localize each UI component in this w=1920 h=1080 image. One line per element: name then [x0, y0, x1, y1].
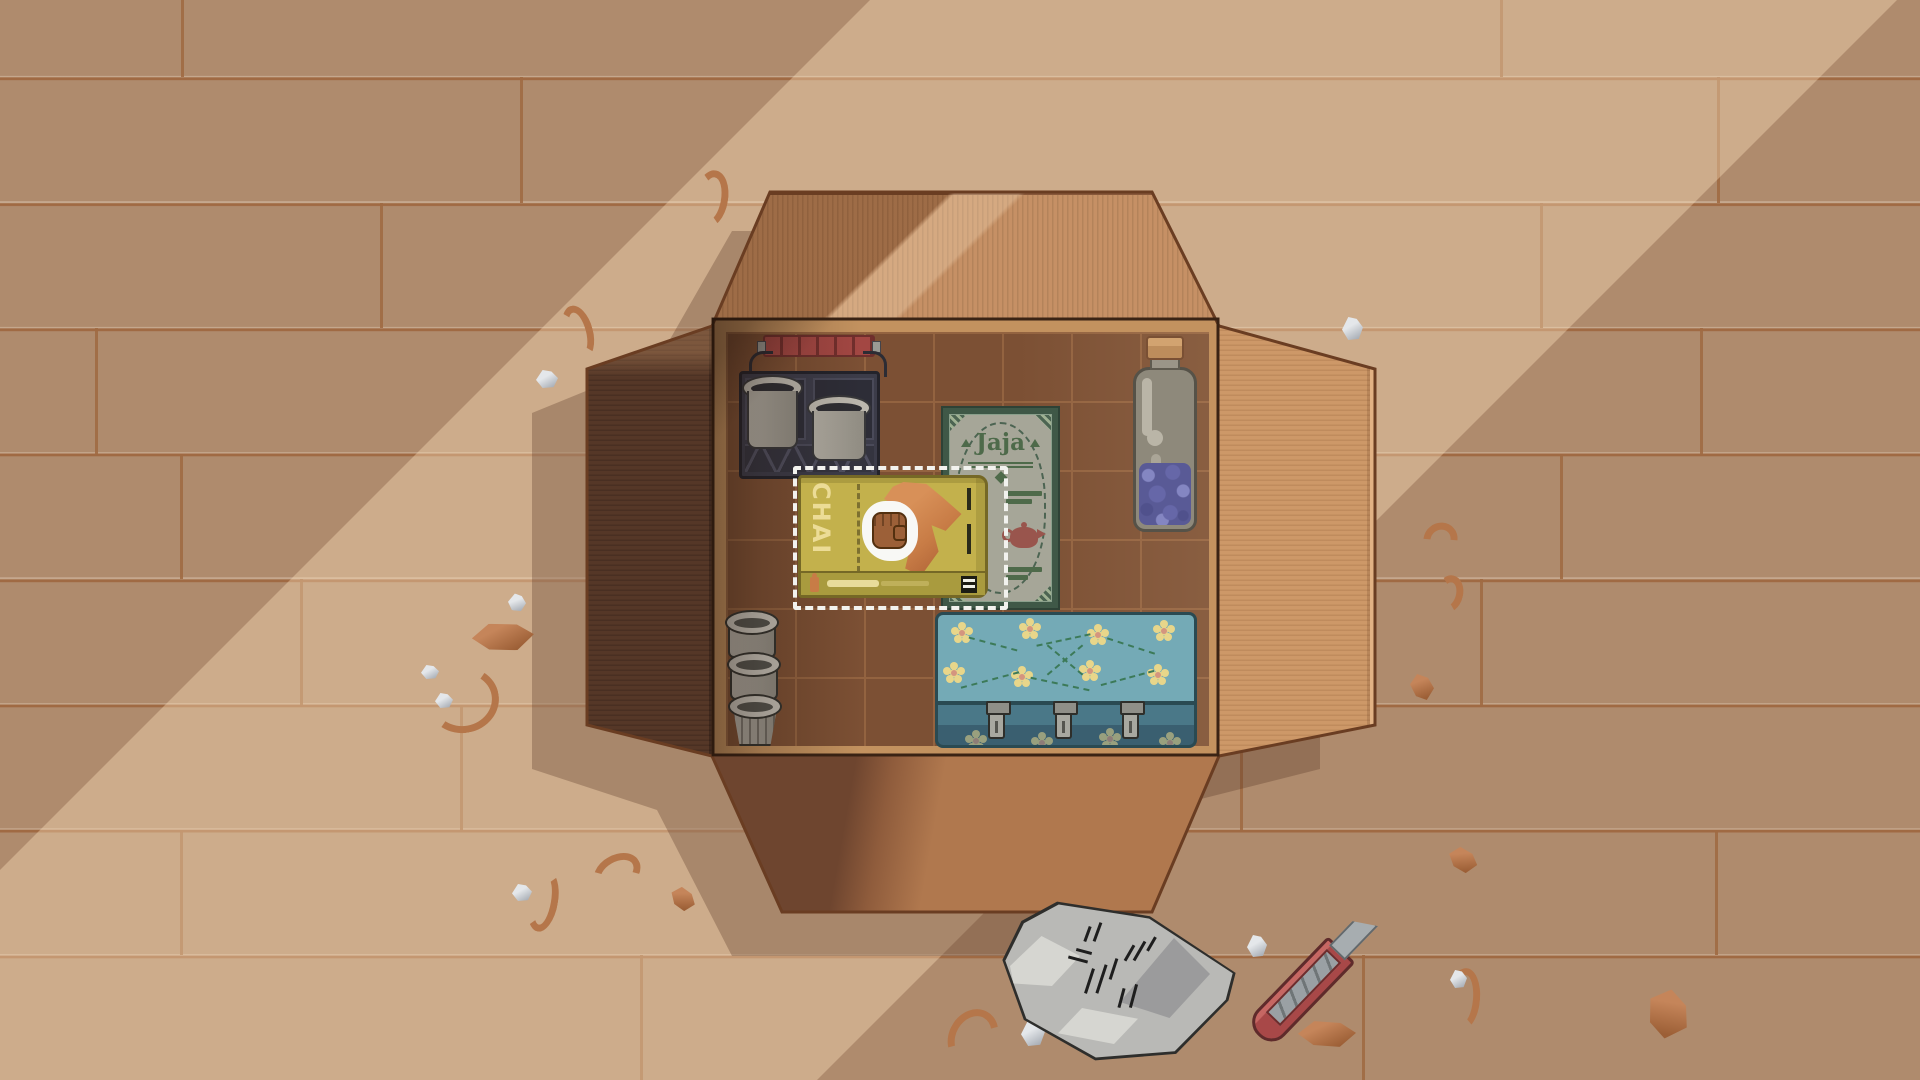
flower-icon	[1094, 631, 1102, 639]
plank-seam	[1540, 203, 1543, 328]
flower-icon	[950, 669, 958, 677]
lavender-sprigs	[1139, 463, 1191, 525]
crate-red-handle	[763, 335, 875, 357]
vine-pattern	[1101, 670, 1155, 686]
jaja-ornament-right	[1030, 439, 1040, 447]
suitcase-clasp	[1055, 703, 1072, 739]
plank-seam	[520, 77, 523, 203]
suitcase-clasp	[1122, 703, 1139, 739]
chai-title: CHAI	[809, 482, 833, 574]
chai-accent-bar	[967, 524, 971, 554]
chai-divider	[857, 484, 860, 572]
metal-bucket-left	[742, 375, 803, 449]
jaja-title: Jaja	[976, 431, 1025, 454]
vine-pattern	[1030, 677, 1089, 691]
flower-icon	[1038, 739, 1046, 747]
plank-seam	[380, 203, 383, 328]
chai-label-bar	[881, 581, 929, 586]
plank-seam	[1700, 328, 1703, 454]
jaja-text-block-upper	[1006, 491, 1042, 504]
flower-icon	[1160, 627, 1168, 635]
packing-paper-wrap[interactable]	[1000, 900, 1238, 1062]
flower-icon	[1018, 673, 1026, 681]
box-flap-right	[1219, 326, 1375, 756]
vine-pattern	[1107, 637, 1155, 654]
flower-icon	[972, 737, 980, 745]
chai-label-bar	[827, 580, 879, 587]
jaja-teapot-illustration	[1002, 519, 1046, 553]
item-crate-with-buckets[interactable]	[737, 331, 882, 481]
plank-seam	[95, 328, 98, 454]
plank-seam	[300, 579, 303, 705]
plank-seam	[180, 830, 183, 955]
jar-cork	[1146, 336, 1184, 360]
item-lavender-jar[interactable]	[1133, 336, 1197, 534]
suitcase-clasp	[988, 703, 1005, 739]
plank-seam	[1480, 579, 1483, 705]
box-flap-bottom	[712, 756, 1219, 912]
chai-accent-bar	[967, 488, 971, 510]
box-flap-top	[712, 192, 1219, 328]
flower-icon	[1086, 667, 1094, 675]
flower-icon	[958, 629, 966, 637]
metal-bucket-right	[807, 395, 871, 461]
jaja-text-block-lower	[1006, 567, 1042, 580]
plank-seam	[180, 454, 183, 579]
plank-seam	[640, 955, 643, 1080]
vine-pattern	[961, 671, 1019, 688]
plank-seam	[1717, 77, 1720, 203]
box-flap-left	[587, 326, 712, 756]
plank-seam	[1500, 0, 1503, 77]
plank-seam	[1715, 830, 1718, 955]
unpacking-scene: Jaja	[0, 0, 1920, 1080]
flower-icon	[1154, 671, 1162, 679]
item-floral-suitcase[interactable]	[935, 612, 1197, 748]
item-cup-stack[interactable]	[724, 608, 780, 746]
plank-seam	[181, 0, 184, 77]
jar-glass	[1133, 367, 1197, 532]
flower-icon	[1026, 625, 1034, 633]
flower-icon	[1106, 735, 1114, 743]
fist-icon	[872, 512, 907, 549]
chai-bottom-strip	[801, 571, 985, 595]
chai-figure-icon	[810, 577, 819, 592]
flower-icon	[1166, 739, 1174, 747]
grab-hand-cursor[interactable]	[862, 501, 918, 561]
cup-bottom	[728, 694, 782, 744]
jaja-ornament-left	[961, 439, 971, 447]
vine-pattern	[969, 637, 1018, 652]
chai-barcode	[961, 576, 977, 593]
plank-seam	[1362, 955, 1365, 1080]
plank-seam	[1560, 454, 1563, 579]
